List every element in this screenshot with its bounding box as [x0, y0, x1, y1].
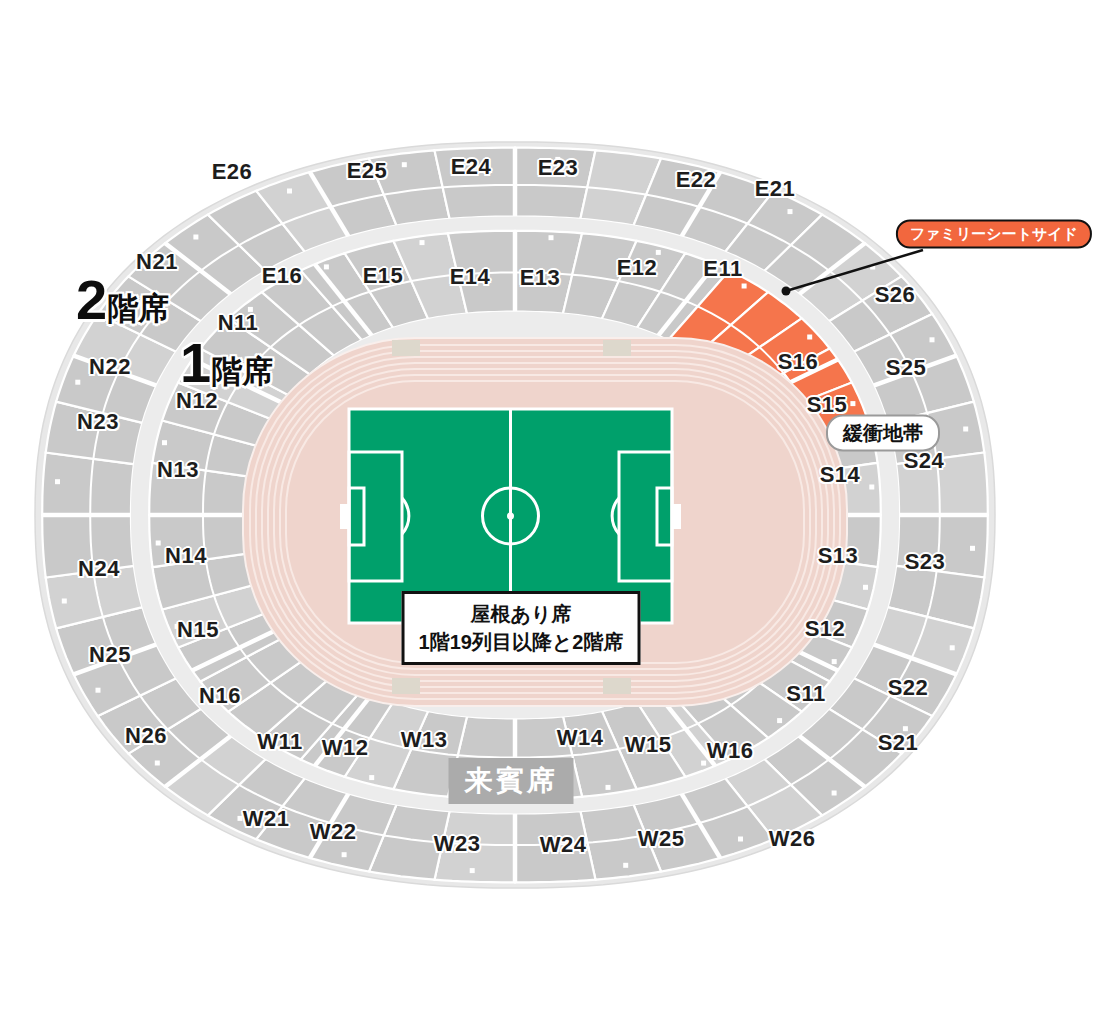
buffer-zone-badge: 緩衝地帯	[826, 415, 940, 452]
family-seat-side-label: ファミリーシートサイド	[910, 225, 1078, 242]
vip-seats-badge: 来賓席	[449, 758, 574, 804]
stadium-seating-map: E26E25E24E23E22E21E16E15E14E13E12E11N21N…	[0, 0, 1100, 1034]
roofed-seats-note: 屋根あり席 1階19列目以降と2階席	[402, 591, 641, 665]
stadium-bowl-graphic	[0, 0, 1100, 1034]
family-seat-side-callout: ファミリーシートサイド	[896, 220, 1092, 249]
buffer-zone-label: 緩衝地帯	[843, 422, 923, 444]
roofed-seats-note-line2: 1階19列目以降と2階席	[419, 628, 624, 656]
goal-right	[672, 504, 681, 529]
center-spot	[507, 513, 514, 520]
track-stand-tab	[392, 340, 420, 356]
track-stand-tab	[603, 678, 631, 694]
track-stand-tab	[603, 340, 631, 356]
track-stand-tab	[392, 678, 420, 694]
goal-left	[340, 504, 349, 529]
vip-seats-label: 来賓席	[465, 765, 558, 796]
callout-leader-dot	[782, 287, 791, 296]
roofed-seats-note-line1: 屋根あり席	[419, 600, 624, 628]
